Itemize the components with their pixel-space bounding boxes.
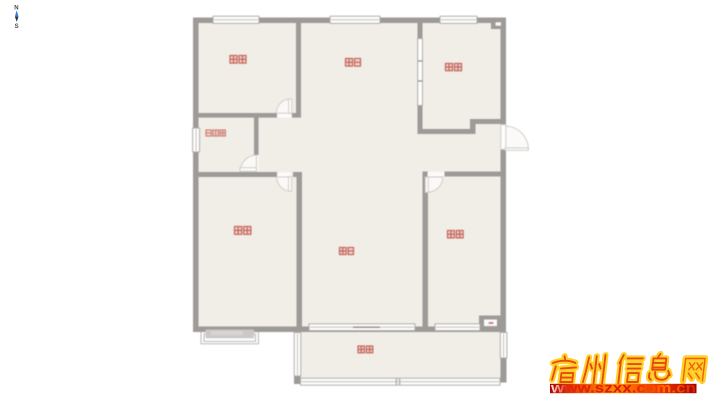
svg-text:S: S [15,24,19,30]
svg-text:www.szxx.com.cn: www.szxx.com.cn [550,381,696,396]
svg-text:N: N [14,6,18,12]
